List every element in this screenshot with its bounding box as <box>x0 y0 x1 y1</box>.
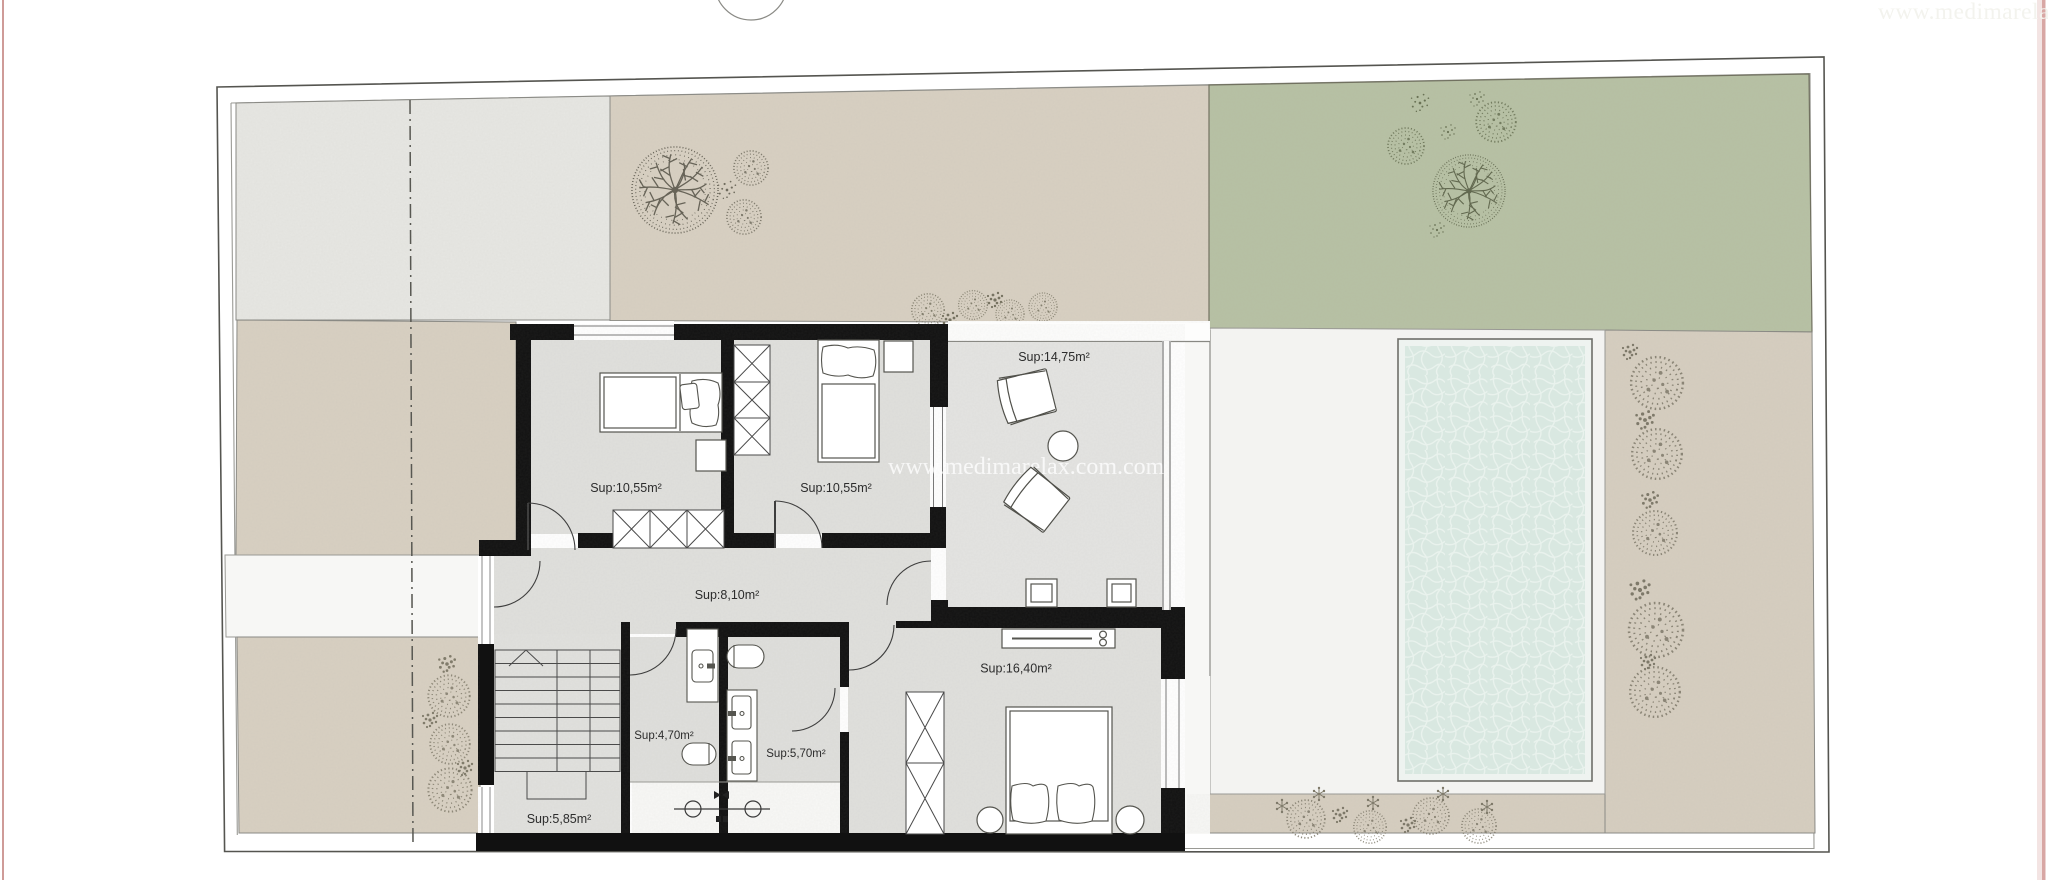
svg-text:Sup:10,55m²: Sup:10,55m² <box>800 481 872 495</box>
svg-text:Sup:8,10m²: Sup:8,10m² <box>695 588 760 602</box>
svg-text:Sup:4,70m²: Sup:4,70m² <box>634 730 694 742</box>
svg-text:Sup:16,40m²: Sup:16,40m² <box>980 662 1052 676</box>
svg-text:www.medimarelax.com: www.medimarelax.com <box>1878 0 2048 25</box>
svg-text:Sup:14,75m²: Sup:14,75m² <box>1018 350 1090 364</box>
svg-text:Sup:10,55m²: Sup:10,55m² <box>590 481 662 495</box>
svg-text:Sup:5,70m²: Sup:5,70m² <box>766 748 826 760</box>
svg-text:Sup:5,85m²: Sup:5,85m² <box>527 812 592 826</box>
